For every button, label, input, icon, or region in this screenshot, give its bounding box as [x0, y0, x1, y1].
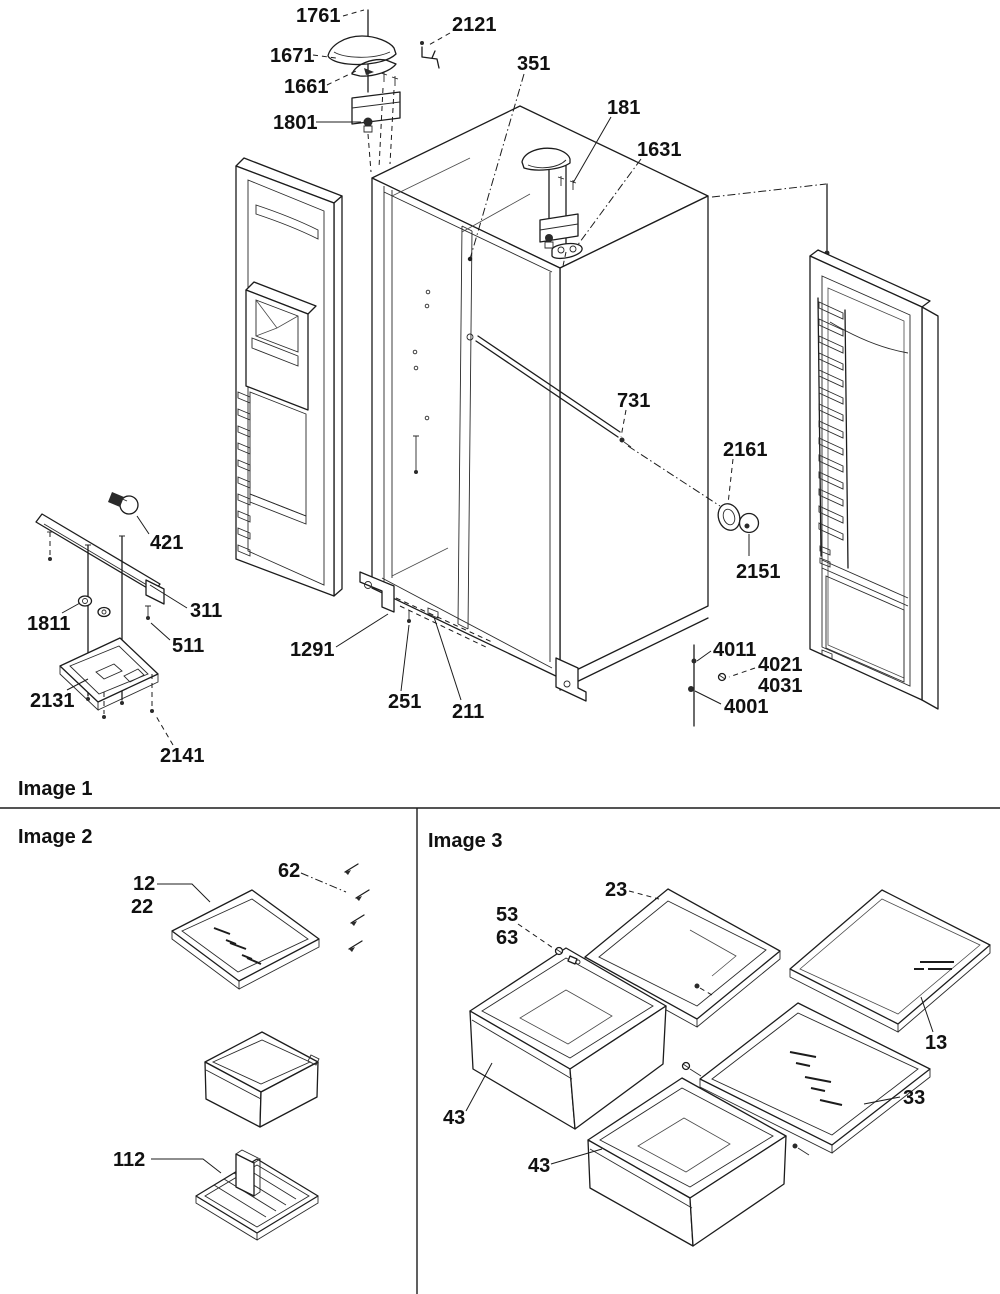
bottom-left-assembly-drawing — [36, 492, 164, 719]
leader-line-12-24 — [157, 884, 210, 902]
left-top-hinge-drawing — [328, 10, 439, 172]
image2-parts-drawing — [172, 864, 369, 1240]
part-label-421-15: 421 — [150, 532, 183, 554]
leader-line-1761-0 — [343, 10, 364, 16]
leader-line-1291-21 — [336, 614, 388, 647]
leader-line-4011-11 — [697, 651, 711, 661]
section-label-3: Image 3 — [428, 830, 502, 852]
part-label-63-30: 63 — [496, 927, 518, 949]
leader-line-4021-12 — [729, 668, 755, 677]
part-label-2141-20: 2141 — [160, 745, 205, 767]
part-label-1801-4: 1801 — [273, 112, 318, 134]
leader-line-1661-3 — [327, 71, 356, 85]
leader-line-2121-1 — [427, 33, 450, 46]
part-label-13-33: 13 — [925, 1032, 947, 1054]
part-label-1811-17: 1811 — [27, 613, 70, 635]
part-label-112-27: 112 — [113, 1149, 145, 1171]
part-label-181-6: 181 — [607, 97, 640, 119]
leader-line-23-28 — [629, 891, 659, 899]
leader-line-2141-20 — [156, 716, 173, 745]
leader-line-4001-14 — [695, 691, 721, 704]
parts-diagram: Image 1Image 2Image 3 176121211671166118… — [0, 0, 1000, 1294]
leader-line-2161-9 — [728, 459, 733, 504]
part-label-2161-9: 2161 — [723, 439, 768, 461]
leader-line-62-26 — [301, 873, 346, 892]
section-labels: Image 1Image 2Image 3 — [18, 778, 502, 852]
part-label-12-24: 12 — [133, 873, 155, 895]
part-label-2151-10: 2151 — [736, 561, 781, 583]
leader-line-53-29 — [518, 924, 556, 950]
leader-line-1811-17 — [62, 603, 80, 613]
part-label-1661-3: 1661 — [284, 76, 329, 98]
part-label-2131-19: 2131 — [30, 690, 75, 712]
part-label-23-28: 23 — [605, 879, 627, 901]
leader-line-251-22 — [401, 625, 409, 691]
section-label-2: Image 2 — [18, 826, 92, 848]
part-label-731-8: 731 — [617, 390, 650, 412]
part-label-1671-2: 1671 — [270, 45, 315, 67]
part-label-251-22: 251 — [388, 691, 421, 713]
part-label-1761-0: 1761 — [296, 5, 341, 27]
part-label-22-25: 22 — [131, 896, 153, 918]
leader-line-211-23 — [434, 617, 461, 700]
part-label-1631-7: 1631 — [637, 139, 682, 161]
part-label-4021-12: 4021 — [758, 654, 803, 676]
page: { "diagram": { "title": "Refrigerator ex… — [0, 0, 1000, 1294]
part-label-33-34: 33 — [903, 1087, 925, 1109]
leader-line-13-33 — [921, 997, 933, 1032]
part-label-351-5: 351 — [517, 53, 550, 75]
leader-line-511-18 — [151, 623, 170, 640]
section-label-1: Image 1 — [18, 778, 92, 800]
part-label-43-31: 43 — [443, 1107, 465, 1129]
part-label-2121-1: 2121 — [452, 14, 497, 36]
part-label-1291-21: 1291 — [290, 639, 335, 661]
part-label-311-16: 311 — [190, 600, 222, 622]
image3-parts-drawing — [470, 889, 990, 1246]
part-label-53-29: 53 — [496, 904, 518, 926]
part-label-4031-13: 4031 — [758, 675, 803, 697]
cabinet-drawing — [360, 106, 708, 701]
part-label-4001-14: 4001 — [724, 696, 769, 718]
right-door-drawing — [810, 250, 938, 709]
part-label-511-18: 511 — [172, 635, 204, 657]
part-label-43-32: 43 — [528, 1155, 550, 1177]
leader-dot-351 — [468, 257, 472, 261]
leader-line-112-27 — [151, 1159, 221, 1173]
part-label-4011-11: 4011 — [713, 639, 756, 661]
leader-line-421-15 — [137, 516, 149, 534]
part-label-62-26: 62 — [278, 860, 300, 882]
left-door-drawing — [236, 158, 342, 596]
part-label-211-23: 211 — [452, 701, 484, 723]
